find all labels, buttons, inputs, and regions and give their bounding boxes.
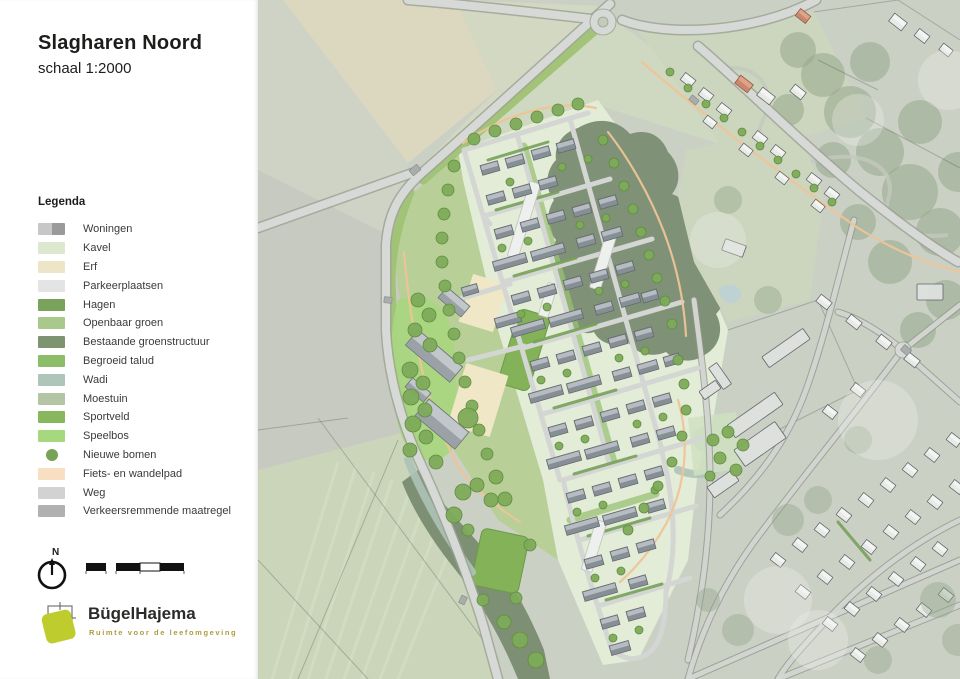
dev-trees (446, 507, 462, 523)
legend-items: WoningenKavelErfParkeerplaatsenHagenOpen… (38, 220, 231, 521)
dev-trees (653, 481, 663, 491)
legend-item: Erf (38, 258, 231, 277)
dev-trees (436, 232, 448, 244)
dev-trees (531, 111, 543, 123)
legend-swatch (38, 374, 65, 386)
dev-trees (443, 304, 455, 316)
dev-trees (462, 524, 474, 536)
dev-trees (828, 198, 836, 206)
dev-trees (595, 287, 603, 295)
dev-trees (563, 369, 571, 377)
village-foliage (772, 504, 804, 536)
dev-trees (660, 296, 670, 306)
legend-swatch (38, 411, 65, 423)
dev-trees (774, 156, 782, 164)
dev-trees (442, 184, 454, 196)
dev-trees (738, 128, 746, 136)
logo-name: BügelHajema (88, 604, 196, 624)
dev-trees (448, 160, 460, 172)
legend-swatch (38, 280, 65, 292)
dev-trees (455, 484, 471, 500)
legend-label: Woningen (83, 223, 132, 235)
dev-trees (489, 470, 503, 484)
legend-label: Kavel (83, 242, 111, 254)
scale-bar (84, 558, 194, 578)
dev-trees (673, 355, 683, 365)
dev-trees (602, 214, 610, 222)
dev-trees (524, 539, 536, 551)
dev-trees (537, 376, 545, 384)
dev-trees (512, 632, 528, 648)
plan-sheet: Slagharen Noord schaal 1:2000 Legenda Wo… (0, 0, 960, 679)
dev-trees (617, 567, 625, 575)
dev-trees (619, 181, 629, 191)
dev-trees (677, 431, 687, 441)
traffic-calming (384, 297, 392, 304)
dev-trees (737, 439, 749, 451)
dev-trees (730, 464, 742, 476)
dev-trees (659, 413, 667, 421)
dev-trees (623, 525, 633, 535)
dev-trees (468, 133, 480, 145)
info-panel: Slagharen Noord schaal 1:2000 Legenda Wo… (0, 0, 258, 679)
legend-label: Verkeersremmende maatregel (83, 505, 231, 517)
dev-trees (679, 379, 689, 389)
legend-item: Sportveld (38, 408, 231, 427)
dev-trees (584, 155, 592, 163)
dev-trees (403, 443, 417, 457)
dev-trees (667, 319, 677, 329)
dev-trees (666, 68, 674, 76)
forest (780, 32, 816, 68)
dev-trees (722, 426, 734, 438)
dev-trees (572, 98, 584, 110)
legend-item: Nieuwe bomen (38, 446, 231, 465)
dev-trees (714, 452, 726, 464)
dev-trees (628, 204, 638, 214)
legend-swatch (38, 261, 65, 273)
dev-trees (599, 501, 607, 509)
dev-trees (524, 237, 532, 245)
legend-label: Begroeid talud (83, 355, 154, 367)
legend-label: Sportveld (83, 411, 129, 423)
village-foliage (714, 186, 742, 214)
village-foliage (754, 286, 782, 314)
dev-trees (517, 310, 525, 318)
dev-trees (416, 376, 430, 390)
dev-trees (792, 170, 800, 178)
clouds (788, 610, 848, 670)
dev-trees (418, 403, 432, 417)
dev-trees (555, 442, 563, 450)
legend-item: Wadi (38, 370, 231, 389)
legend-item: Moestuin (38, 389, 231, 408)
legend-swatch (38, 487, 65, 499)
legend: Legenda WoningenKavelErfParkeerplaatsenH… (38, 196, 231, 521)
north-arrow: N (36, 545, 76, 597)
dev-trees (448, 328, 460, 340)
legend-swatch (38, 336, 65, 348)
scale-label: schaal 1:2000 (38, 60, 131, 77)
dev-trees (423, 338, 437, 352)
dev-trees (681, 405, 691, 415)
dev-trees (633, 420, 641, 428)
legend-swatch (38, 242, 65, 254)
legend-label: Nieuwe bomen (83, 449, 156, 461)
dev-trees (510, 592, 522, 604)
dev-trees (636, 227, 646, 237)
dev-trees (422, 308, 436, 322)
village-foliage (804, 486, 832, 514)
dev-trees (477, 594, 489, 606)
legend-swatch (38, 317, 65, 329)
legend-item: Parkeerplaatsen (38, 276, 231, 295)
village-foliage (920, 582, 956, 618)
legend-label: Parkeerplaatsen (83, 280, 163, 292)
legend-swatch (38, 468, 65, 480)
dev-trees (405, 416, 421, 432)
legend-title: Legenda (38, 196, 231, 208)
dev-trees (498, 492, 512, 506)
dev-trees (481, 448, 493, 460)
dev-trees (576, 221, 584, 229)
legend-item: Begroeid talud (38, 352, 231, 371)
site-plan-svg (258, 0, 960, 679)
legend-swatch (38, 393, 65, 405)
dev-trees (419, 430, 433, 444)
dev-trees (497, 615, 511, 629)
dev-trees (707, 434, 719, 446)
dev-trees (615, 354, 623, 362)
dev-trees (609, 634, 617, 642)
dev-trees (436, 256, 448, 268)
village-foliage (722, 614, 754, 646)
dev-trees (705, 471, 715, 481)
dev-trees (644, 250, 654, 260)
dev-trees (581, 435, 589, 443)
legend-item: Kavel (38, 239, 231, 258)
dev-trees (573, 508, 581, 516)
legend-item: Verkeersremmende maatregel (38, 502, 231, 521)
legend-label: Erf (83, 261, 97, 273)
legend-swatch (38, 449, 65, 461)
legend-item: Bestaande groenstructuur (38, 333, 231, 352)
legend-label: Weg (83, 487, 105, 499)
legend-label: Hagen (83, 299, 115, 311)
dev-trees (635, 626, 643, 634)
dev-trees (510, 118, 522, 130)
legend-swatch (38, 505, 65, 517)
legend-label: Openbaar groen (83, 317, 163, 329)
legend-item: Hagen (38, 295, 231, 314)
dev-trees (459, 376, 471, 388)
dev-trees (621, 280, 629, 288)
legend-item: Woningen (38, 220, 231, 239)
clouds (838, 380, 918, 460)
dev-trees (810, 184, 818, 192)
legend-label: Speelbos (83, 430, 129, 442)
dev-trees (439, 280, 451, 292)
legend-swatch (38, 430, 65, 442)
village-foliage (696, 588, 720, 612)
dev-trees (558, 163, 566, 171)
clouds (832, 94, 884, 146)
dev-trees (498, 244, 506, 252)
village-foliage (864, 646, 892, 674)
dev-trees (506, 178, 514, 186)
legend-item: Fiets- en wandelpad (38, 464, 231, 483)
legend-item: Openbaar groen (38, 314, 231, 333)
dev-trees (756, 142, 764, 150)
dev-trees (429, 455, 443, 469)
dev-trees (702, 100, 710, 108)
north-label: N (52, 547, 59, 558)
legend-swatch (38, 223, 65, 235)
legend-label: Fiets- en wandelpad (83, 468, 182, 480)
dev-trees (652, 273, 662, 283)
village-sheds (917, 284, 943, 300)
dev-trees (598, 135, 608, 145)
dev-trees (458, 408, 478, 428)
clouds (690, 212, 746, 268)
legend-swatch (38, 299, 65, 311)
logo-tagline: Ruimte voor de leefomgeving (89, 628, 237, 637)
dev-trees (720, 114, 728, 122)
legend-swatch (38, 355, 65, 367)
legend-label: Wadi (83, 374, 108, 386)
legend-item: Weg (38, 483, 231, 502)
dev-trees (641, 347, 649, 355)
dev-trees (552, 104, 564, 116)
dev-trees (528, 652, 544, 668)
dev-trees (484, 493, 498, 507)
dev-trees (667, 457, 677, 467)
dev-trees (639, 503, 649, 513)
dev-trees (470, 478, 484, 492)
dev-trees (591, 574, 599, 582)
site-plan-map (258, 0, 960, 679)
page-title: Slagharen Noord (38, 32, 202, 55)
dev-trees (489, 125, 501, 137)
dev-trees (609, 158, 619, 168)
dev-trees (438, 208, 450, 220)
dev-trees (403, 389, 419, 405)
forest (850, 42, 890, 82)
legend-item: Speelbos (38, 427, 231, 446)
dev-trees (411, 293, 425, 307)
legend-label: Bestaande groenstructuur (83, 336, 210, 348)
dev-trees (408, 323, 422, 337)
roundabout-core (598, 17, 608, 27)
bugelhajema-logo: BügelHajema Ruimte voor de leefomgeving (34, 598, 244, 660)
legend-label: Moestuin (83, 393, 128, 405)
dev-trees (453, 352, 465, 364)
dev-trees (543, 303, 551, 311)
logo-icon (34, 598, 88, 656)
dev-trees (402, 362, 418, 378)
dev-trees (684, 84, 692, 92)
